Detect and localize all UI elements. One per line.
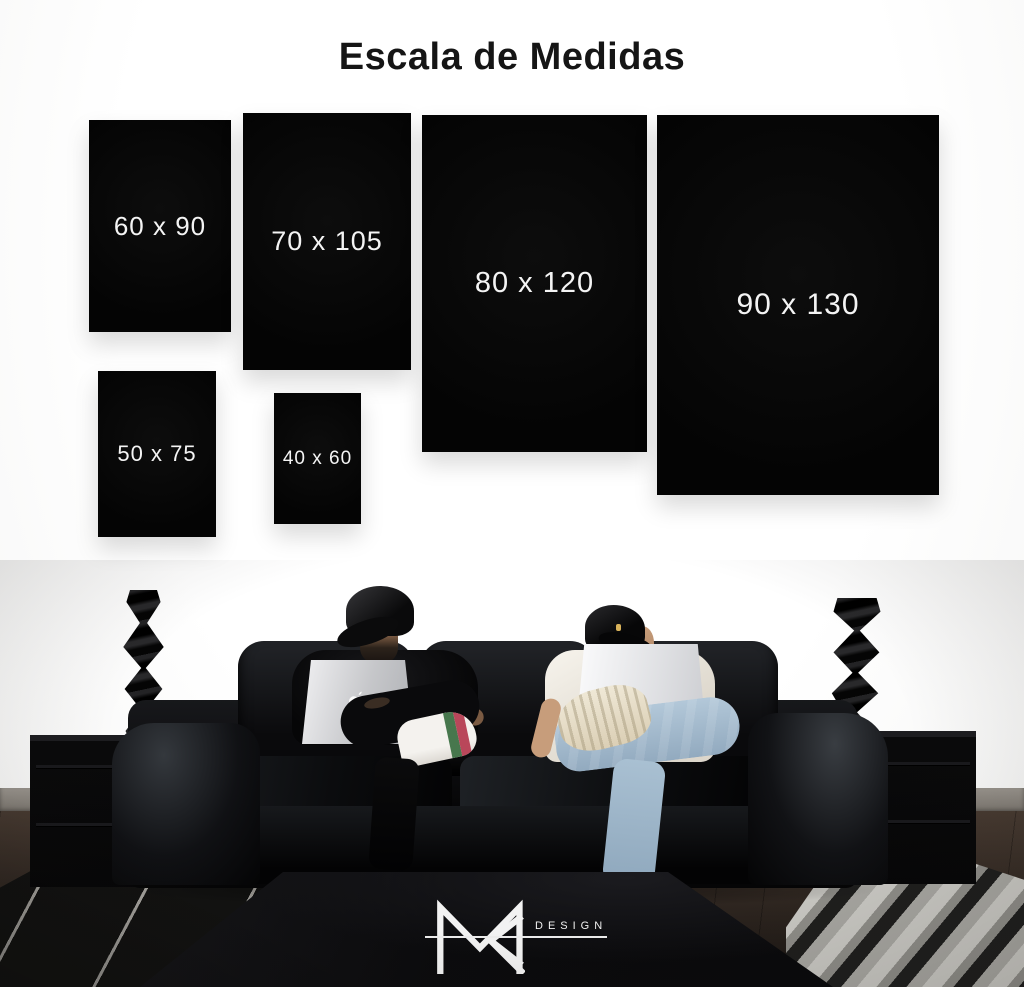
cap-badge bbox=[616, 624, 621, 631]
black-lower-leg bbox=[368, 757, 420, 872]
brand-logo: DESIGN bbox=[425, 880, 635, 980]
logo-wordmark: DESIGN bbox=[535, 920, 607, 932]
sofa-arm-left bbox=[112, 723, 260, 885]
lifestyle-photo: DESIGN bbox=[0, 0, 1024, 987]
man-left bbox=[280, 580, 510, 880]
jeans-lower-leg bbox=[602, 758, 667, 888]
man-right bbox=[540, 600, 790, 890]
logo-rule-line bbox=[425, 936, 607, 938]
mr-monogram-icon bbox=[433, 884, 525, 974]
size-scale-infographic: Escala de Medidas 60 x 90 70 x 105 80 x … bbox=[0, 0, 1024, 987]
